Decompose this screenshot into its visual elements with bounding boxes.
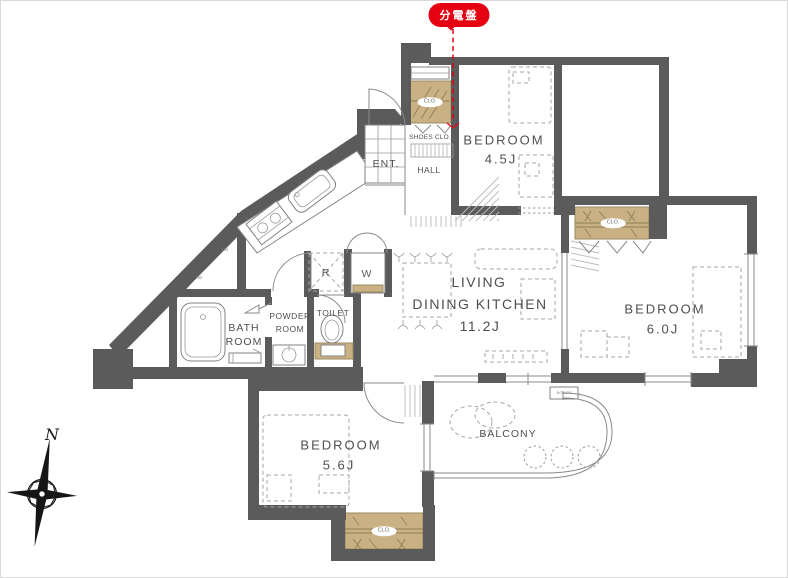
- distribution-board-badge: 分電盤: [429, 3, 490, 27]
- compass-icon: [1, 434, 84, 552]
- windows-layer: [420, 208, 758, 471]
- bath-line2: ROOM: [226, 337, 263, 348]
- bedroom-right-size: 6.0J: [647, 323, 680, 336]
- hall-label: HALL: [417, 166, 440, 175]
- shaft-label-1: UB: [222, 248, 228, 253]
- shoes-clo-label: SHOES CLO.: [409, 135, 451, 142]
- bedroom-bottom-name: BEDROOM: [300, 439, 381, 452]
- closet-label-right: CLO.: [601, 218, 626, 228]
- ent-label: ENT.: [373, 159, 400, 170]
- boiler-label: BOILER: [557, 391, 572, 395]
- washer-label: W: [362, 269, 373, 280]
- ldk-size: 11.2J: [460, 319, 501, 333]
- powder-line1: POWDER: [269, 312, 310, 321]
- bedroom-right-name: BEDROOM: [624, 303, 705, 316]
- compass-north-label: N: [45, 427, 59, 443]
- shaft-label-2: UB: [196, 276, 202, 281]
- ldk-line1: LIVING: [452, 275, 507, 289]
- closet-label-top: CLO.: [418, 97, 443, 107]
- bedroom-top-name: BEDROOM: [463, 134, 544, 147]
- bedroom-bottom-size: 5.6J: [323, 459, 356, 472]
- floor-plan: 分電盤 BEDROOM 4.5J BEDROOM 6.0J BEDROOM 5.…: [0, 0, 788, 578]
- powder-line2: ROOM: [276, 325, 304, 334]
- bath-line1: BATH: [228, 323, 259, 334]
- toilet-label: TOILET: [317, 309, 350, 318]
- fridge-label: R: [322, 268, 331, 279]
- ldk-line2: DINING KITCHEN: [412, 297, 547, 311]
- toilet-icon: [315, 315, 353, 359]
- balcony-label: BALCONY: [479, 429, 536, 440]
- floor-plan-drawing: [1, 1, 788, 578]
- bedroom-top-size: 4.5J: [485, 153, 518, 166]
- powder-sink-icon: [273, 345, 305, 365]
- closet-label-bottom: CLO.: [372, 526, 397, 536]
- ent-tiles: [365, 125, 405, 215]
